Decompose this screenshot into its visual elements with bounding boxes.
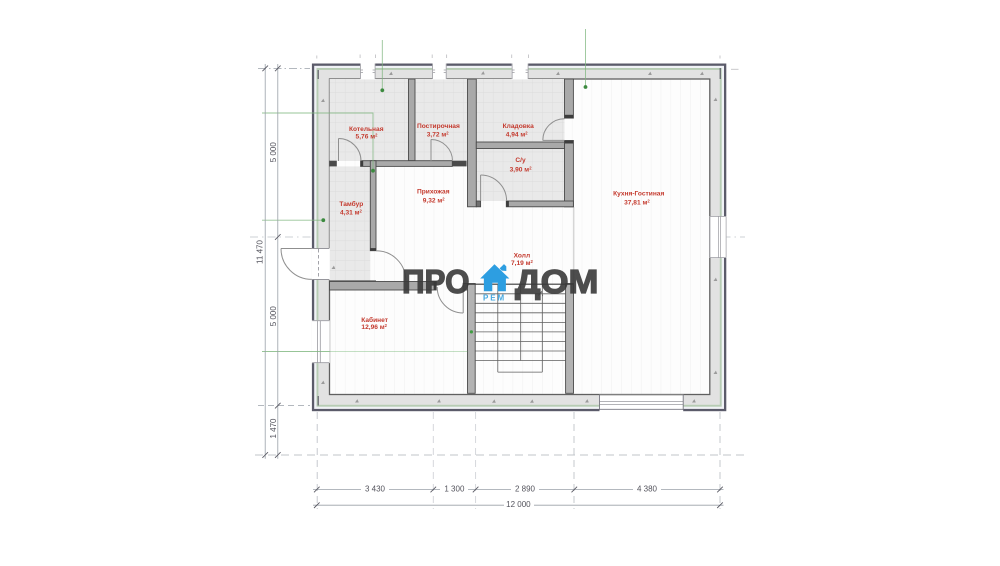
svg-text:Холл: Холл (514, 253, 531, 260)
svg-text:3,90 м2: 3,90 м2 (510, 165, 533, 173)
svg-text:4,31 м2: 4,31 м2 (340, 209, 363, 217)
svg-text:2 890: 2 890 (515, 484, 536, 493)
svg-text:4,94 м2: 4,94 м2 (506, 131, 529, 139)
svg-text:Кладовка: Кладовка (503, 123, 534, 130)
svg-text:Прихожая: Прихожая (417, 188, 450, 195)
svg-text:37,81 м2: 37,81 м2 (624, 199, 650, 207)
svg-text:12 000: 12 000 (506, 500, 531, 509)
svg-text:1 300: 1 300 (444, 484, 465, 493)
svg-text:Постирочная: Постирочная (417, 123, 460, 130)
svg-text:4 380: 4 380 (637, 484, 658, 493)
svg-text:3 430: 3 430 (365, 484, 386, 493)
svg-text:3,72 м2: 3,72 м2 (427, 131, 450, 139)
svg-text:ПРО: ПРО (402, 264, 470, 301)
svg-text:5 000: 5 000 (269, 306, 278, 327)
svg-text:5 000: 5 000 (269, 142, 278, 163)
svg-text:ДОМ: ДОМ (515, 264, 599, 301)
svg-text:Котельная: Котельная (349, 126, 384, 133)
svg-text:Тамбур: Тамбур (339, 200, 363, 208)
svg-text:1 470: 1 470 (269, 418, 278, 439)
svg-text:РЕМ: РЕМ (483, 293, 506, 302)
svg-text:С/у: С/у (515, 157, 526, 164)
svg-text:9,32 м2: 9,32 м2 (423, 196, 446, 204)
svg-text:5,76 м2: 5,76 м2 (356, 133, 379, 141)
svg-text:12,96 м2: 12,96 м2 (361, 323, 387, 331)
svg-text:Кухня-Гостиная: Кухня-Гостиная (613, 190, 664, 197)
svg-text:11 470: 11 470 (256, 240, 265, 264)
